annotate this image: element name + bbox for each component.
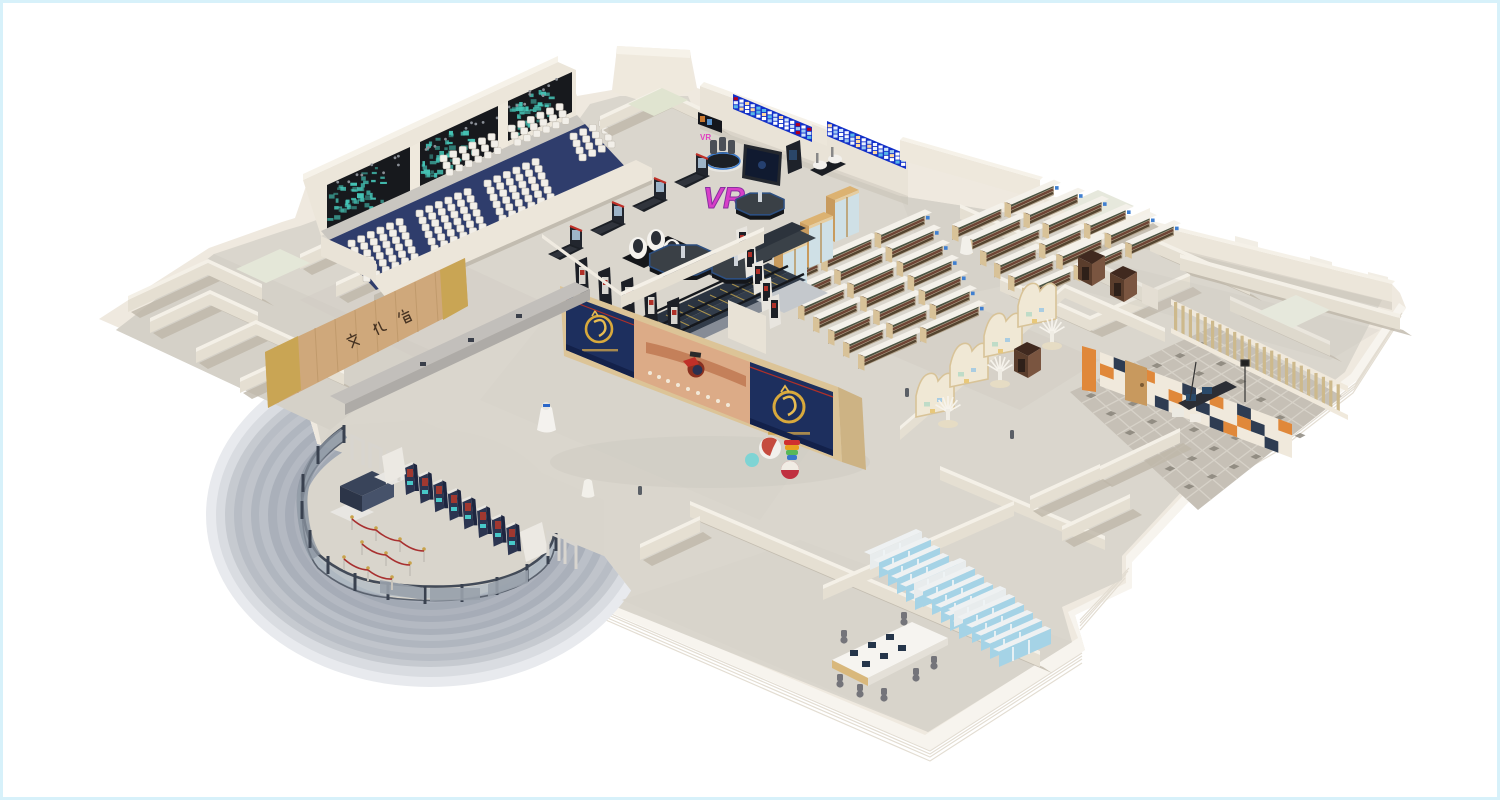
svg-text:VR: VR <box>700 133 711 142</box>
